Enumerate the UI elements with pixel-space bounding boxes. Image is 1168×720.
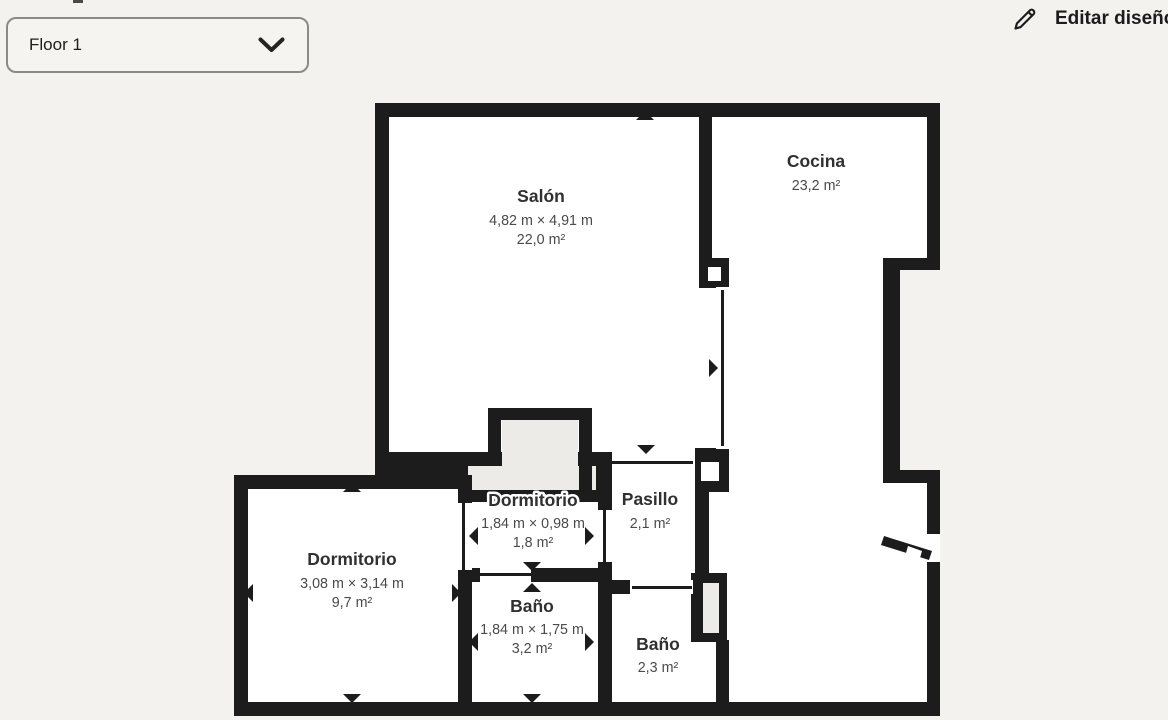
- room-area: 23,2 m²: [792, 178, 841, 194]
- wall: [579, 452, 612, 466]
- room-area: 3,2 m²: [512, 641, 553, 657]
- room-area: 2,3 m²: [638, 660, 679, 676]
- room-title: Dormitorio: [307, 549, 396, 569]
- wall: [234, 475, 248, 716]
- room-area: 9,7 m²: [332, 595, 373, 611]
- room-floor: [709, 483, 927, 702]
- wall: [579, 408, 592, 490]
- opening-line: [603, 510, 606, 562]
- wall: [598, 580, 612, 702]
- room-area: 2,1 m²: [630, 516, 671, 532]
- wall-inset: [708, 267, 721, 281]
- room-dimensions: 3,08 m × 3,14 m: [300, 576, 404, 592]
- room-title: Baño: [636, 634, 680, 654]
- room-title: Baño: [510, 596, 554, 616]
- unassigned-area: [468, 466, 596, 490]
- room-dimensions: 1,84 m × 1,75 m: [480, 622, 584, 638]
- wall-inset: [701, 462, 719, 481]
- room-title: Cocina: [787, 151, 846, 171]
- room-title: Pasillo: [622, 489, 678, 509]
- opening-line: [462, 503, 465, 570]
- opening-line: [632, 586, 692, 589]
- wall: [716, 640, 729, 702]
- wall: [375, 452, 493, 466]
- opening-line: [612, 461, 693, 464]
- room-dimensions: 1,84 m × 0,98 m: [481, 516, 585, 532]
- room-title: Salón: [517, 186, 565, 206]
- opening-line: [480, 573, 531, 576]
- wall: [699, 116, 712, 262]
- unassigned-area: [502, 420, 578, 466]
- room-area: 22,0 m²: [517, 232, 566, 248]
- floor-plan: Salón4,82 m × 4,91 m22,0 m²Cocina23,2 m²…: [0, 0, 1168, 720]
- room-floor: [729, 258, 883, 490]
- room-area: 1,8 m²: [513, 535, 554, 551]
- shaft-inset: [703, 583, 719, 633]
- room-dimensions: 4,82 m × 4,91 m: [489, 213, 593, 229]
- wall: [488, 408, 592, 420]
- room-title: Dormitorio: [488, 490, 577, 510]
- opening-line: [721, 290, 724, 446]
